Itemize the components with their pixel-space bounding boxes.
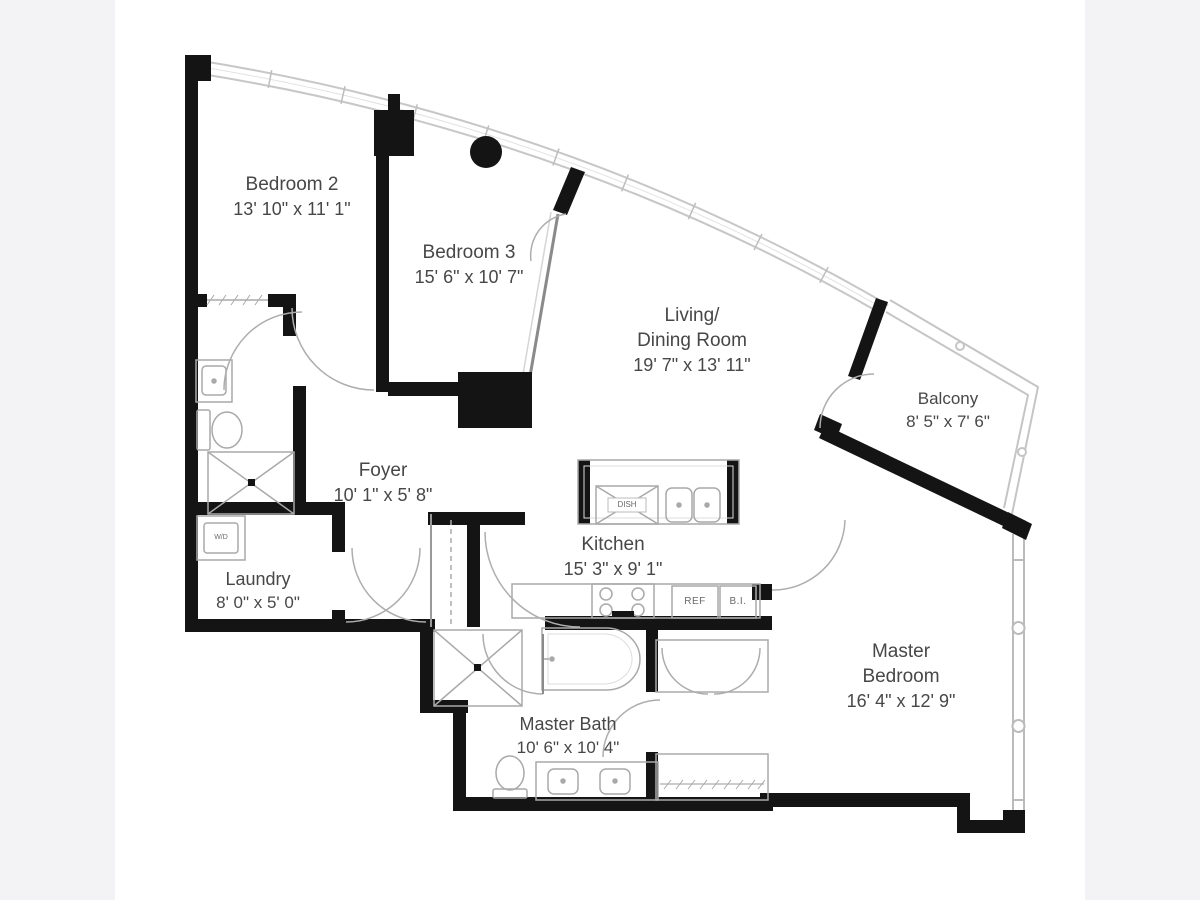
master-window-wall — [1013, 534, 1025, 820]
room-dims: 13' 10" x 11' 1" — [212, 197, 372, 222]
room-label-balcony: Balcony 8' 5" x 7' 6" — [868, 387, 1028, 433]
closet-door-left — [662, 648, 708, 694]
room-label-living-dining: Living/ Dining Room 19' 7" x 13' 11" — [602, 303, 782, 378]
closet-lower — [656, 754, 768, 800]
room-dims: 16' 4" x 12' 9" — [821, 689, 981, 714]
room-label-laundry: Laundry 8' 0" x 5' 0" — [178, 567, 338, 614]
kitchen-sink-icon — [666, 488, 720, 522]
stove-icon — [592, 584, 654, 618]
bedroom3-door-leaf — [553, 167, 585, 215]
room-label-bedroom-2: Bedroom 2 13' 10" x 11' 1" — [212, 172, 372, 222]
room-dims: 10' 6" x 10' 4" — [488, 736, 648, 759]
sink-icon — [196, 360, 232, 402]
room-dims: 15' 6" x 10' 7" — [389, 265, 549, 290]
room-name: Living/ — [602, 303, 782, 328]
room-name: Kitchen — [533, 532, 693, 557]
master-toilet-icon — [493, 756, 527, 798]
room-name: Master Bath — [488, 712, 648, 736]
bedroom2-door — [292, 308, 374, 390]
room-dims: 10' 1" x 5' 8" — [303, 483, 463, 508]
bathroom2-fixtures — [196, 295, 294, 514]
room-name: Balcony — [868, 387, 1028, 410]
balcony-diagonal-wall — [819, 425, 1026, 534]
column-round — [470, 136, 502, 168]
room-name: Bedroom — [821, 664, 981, 689]
room-dims: 8' 0" x 5' 0" — [178, 591, 338, 614]
room-name: Bedroom 3 — [389, 240, 549, 265]
room-name: Bedroom 2 — [212, 172, 372, 197]
vanity-icon — [536, 762, 658, 800]
master-bath-door — [483, 634, 543, 694]
dishwasher-label: DISH — [607, 500, 647, 510]
room-name: Dining Room — [602, 328, 782, 353]
toilet-icon — [197, 410, 242, 450]
room-dims: 19' 7" x 13' 11" — [602, 353, 782, 378]
floorplan-page: Bedroom 2 13' 10" x 11' 1" Bedroom 3 15'… — [0, 0, 1200, 900]
room-dims: 15' 3" x 9' 1" — [533, 557, 693, 582]
bedroom2-closet-doors — [207, 295, 268, 305]
column-block — [458, 372, 532, 428]
master-shower-icon — [434, 630, 522, 706]
room-dims: 8' 5" x 7' 6" — [868, 410, 1028, 433]
hall-closet-door — [352, 548, 426, 622]
master-closets — [656, 640, 768, 800]
room-label-master-bedroom: Master Bedroom 16' 4" x 12' 9" — [821, 639, 981, 714]
column-square — [374, 110, 414, 156]
room-label-master-bath: Master Bath 10' 6" x 10' 4" — [488, 712, 648, 759]
closet-upper — [656, 640, 768, 692]
bathtub-icon — [542, 628, 640, 690]
room-name: Master — [821, 639, 981, 664]
room-name: Laundry — [178, 567, 338, 591]
master-bedroom-door — [772, 520, 845, 590]
room-label-bedroom-3: Bedroom 3 15' 6" x 10' 7" — [389, 240, 549, 290]
floor-plan-drawing — [0, 0, 1200, 900]
room-label-kitchen: Kitchen 15' 3" x 9' 1" — [533, 532, 693, 582]
built-in-label: B.I. — [720, 596, 756, 608]
laundry-door — [346, 548, 420, 622]
washer-dryer-label: W/D — [199, 533, 243, 542]
room-label-foyer: Foyer 10' 1" x 5' 8" — [303, 458, 463, 508]
bedroom3-partition — [521, 212, 558, 388]
room-name: Foyer — [303, 458, 463, 483]
closet-door-right — [714, 648, 760, 694]
refrigerator-label: REF — [672, 596, 718, 608]
